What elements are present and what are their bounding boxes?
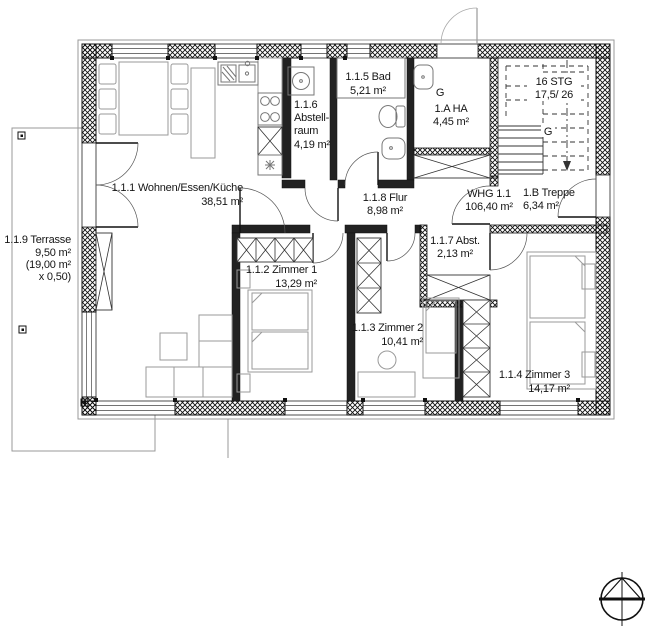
entrance-door: [441, 8, 477, 44]
room-area-bad: 5,21 m²: [350, 85, 386, 97]
tall-cabinet-icon: [258, 127, 282, 155]
window: [82, 312, 96, 397]
window: [215, 44, 257, 58]
abstellraum-door: [305, 188, 338, 221]
room-area-zimmer1: 13,29 m²: [275, 278, 317, 290]
desk-chair: [378, 351, 396, 369]
floor-plan: 1.1.1 Wohnen/Essen/Küche 38,51 m² 1.1.2 …: [0, 0, 651, 635]
single-bed: [423, 298, 459, 378]
room-label-ha: 1.A HA: [434, 103, 468, 115]
washbasin-icon: [382, 138, 405, 159]
room-area-abst: 2,13 m²: [437, 248, 473, 260]
room-area-terrasse: 9,50 m²: [35, 247, 71, 259]
washing-machine-icon: [288, 67, 314, 95]
room-label-bad: 1.1.5 Bad: [345, 71, 390, 83]
chair: [99, 64, 116, 84]
room-area-abstellraum: 4,19 m²: [294, 139, 330, 151]
sofa: [146, 367, 232, 397]
apartment-label: WHG 1.1: [467, 188, 511, 200]
room-label-zimmer2: 1.1.3 Zimmer 2: [352, 322, 423, 334]
ha-sink-icon: [414, 65, 433, 89]
bad-door: [345, 152, 378, 185]
room-area-zimmer2: 10,41 m²: [381, 336, 423, 348]
floor-plan-svg: 1.1.1 Wohnen/Essen/Küche 38,51 m² 1.1.2 …: [0, 0, 651, 635]
window: [363, 401, 425, 415]
window: [500, 401, 578, 415]
stove-icon: [258, 93, 282, 125]
room-area-ha: 4,45 m²: [433, 116, 469, 128]
window: [285, 401, 347, 415]
living-furniture: [96, 233, 232, 397]
zimmer2-door: [387, 233, 415, 261]
room-area-treppe: 6,34 m²: [523, 200, 559, 212]
apartment-area: 106,40 m²: [465, 201, 513, 213]
chair: [171, 114, 188, 134]
dining-set: [99, 62, 188, 135]
window: [347, 44, 370, 58]
room-label-treppe: 1.B Treppe: [523, 187, 575, 199]
room-label-abst: 1.1.7 Abst.: [430, 235, 480, 247]
zimmer1-furniture: [237, 238, 313, 392]
window: [96, 401, 175, 415]
terrace-door-threshold: [82, 143, 96, 227]
desk: [358, 372, 415, 397]
stair-count-label: 16 STG: [536, 76, 573, 88]
sideboard-icon: [96, 233, 112, 310]
window: [112, 44, 168, 58]
room-area-terrasse-3: x 0,50): [39, 271, 71, 283]
room-area-terrasse-2: (19,00 m²: [26, 259, 72, 271]
chair: [99, 89, 116, 109]
zimmer3-door: [490, 233, 527, 270]
room-label-living: 1.1.1 Wohnen/Essen/Küche: [112, 182, 243, 194]
toilet-icon: [379, 106, 405, 128]
room-label-abstellraum-2: Abstell-: [294, 112, 330, 124]
building-plinth: [78, 40, 614, 458]
zimmer1-door: [313, 233, 343, 263]
room-label-zimmer3: 1.1.4 Zimmer 3: [499, 369, 570, 381]
kitchen: [191, 58, 282, 175]
chair: [171, 89, 188, 109]
room-area-flur: 8,98 m²: [367, 205, 403, 217]
drain-label-stair: G: [544, 126, 552, 138]
dining-table: [119, 62, 168, 135]
kitchen-island: [191, 68, 215, 158]
wardrobe-icon: [463, 300, 490, 397]
window: [301, 44, 327, 58]
room-area-zimmer3: 14,17 m²: [528, 383, 570, 395]
room-area-living: 38,51 m²: [201, 196, 243, 208]
zimmer2-furniture: [357, 238, 459, 397]
dishwasher-icon: [258, 155, 282, 175]
drain-label-ha: G: [436, 87, 444, 99]
kitchen-counter: [258, 58, 282, 175]
double-bed: [248, 290, 312, 372]
nightstand: [582, 264, 595, 289]
wardrobe-icon: [357, 238, 381, 313]
room-label-flur: 1.1.8 Flur: [363, 192, 408, 204]
chair: [99, 114, 116, 134]
north-arrow-icon: [599, 572, 645, 626]
room-label-zimmer1: 1.1.2 Zimmer 1: [246, 264, 317, 276]
room-label-abstellraum-3: raum: [294, 125, 318, 137]
nightstand: [582, 352, 595, 377]
interior-walls: [232, 58, 607, 401]
room-label-abstellraum-1: 1.1.6: [294, 99, 318, 111]
room-label-terrasse: 1.1.9 Terrasse: [4, 234, 71, 246]
entrance-threshold: [437, 44, 478, 58]
wardrobe-icon: [237, 238, 313, 262]
stair-dimensions-label: 17,5/ 26: [535, 89, 573, 101]
stair-entrance-threshold: [596, 175, 610, 217]
coffee-table: [160, 333, 187, 360]
sink-icon: [218, 61, 258, 85]
chair: [171, 64, 188, 84]
